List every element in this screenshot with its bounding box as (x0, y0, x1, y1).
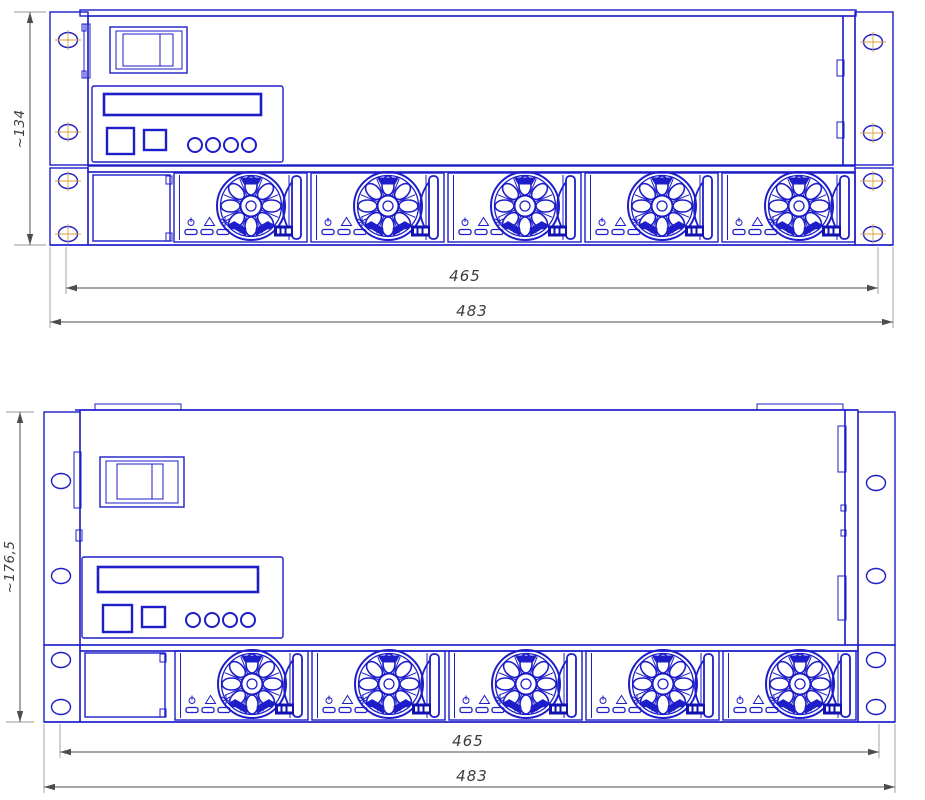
mounting-hole (55, 171, 81, 191)
mounting-hole (860, 32, 886, 52)
fan-module (722, 172, 855, 242)
fan-module (448, 172, 581, 242)
panel-button-round (206, 138, 220, 152)
mounting-hole (860, 224, 886, 244)
mounting-hole (867, 653, 886, 668)
mounting-hole (52, 653, 71, 668)
dim-text-height-2: ~176,5 (2, 541, 18, 594)
rack-ear-right-lower (855, 168, 893, 245)
control-panel (92, 86, 283, 162)
breaker-switch (110, 27, 187, 73)
dim-text-outer-width-2: 483 (456, 767, 488, 785)
dimension-width-465-view-2: 465 (60, 724, 879, 758)
fan-module (723, 650, 856, 720)
fan-shelf-band (80, 645, 858, 651)
mounting-hole (52, 569, 71, 584)
chassis-top-edge (80, 10, 856, 16)
lcd-display (98, 567, 258, 592)
mounting-hole (55, 122, 81, 142)
mounting-hole (867, 700, 886, 715)
right-flange (845, 410, 858, 645)
panel-button-square (107, 128, 134, 154)
dimension-height-view-1: ~134 (12, 12, 46, 245)
mounting-hole (55, 224, 81, 244)
rack-ear-right-lower (858, 645, 895, 722)
dim-text-outer-width-1: 483 (456, 302, 488, 320)
drawing-page: ~134 465 483 (0, 0, 925, 800)
blank-filler-panel (85, 653, 166, 717)
drawing-view-2 (44, 404, 895, 722)
fan-module (449, 650, 582, 720)
panel-button-square (144, 130, 166, 150)
top-tab (95, 404, 181, 410)
fan-shelf (80, 651, 858, 722)
rack-ear-right (858, 412, 895, 645)
left-latch (84, 24, 90, 78)
panel-button-round (188, 138, 202, 152)
unit-body (80, 410, 845, 645)
rack-ear-left (44, 412, 80, 645)
panel-button-round (186, 613, 200, 627)
control-panel (82, 557, 283, 638)
top-tab (757, 404, 843, 410)
panel-button-round (223, 613, 237, 627)
fan-row (175, 650, 856, 720)
dim-text-inner-width-1: 465 (449, 267, 481, 285)
rack-ear-left-lower (44, 645, 80, 722)
dimension-width-465-view-1: 465 (66, 247, 878, 294)
panel-button-round (241, 613, 255, 627)
left-latch-tab (76, 530, 82, 541)
breaker-switch (100, 457, 184, 507)
fan-row (174, 172, 855, 242)
panel-button-round (224, 138, 238, 152)
mounting-hole (867, 476, 886, 491)
mounting-hole (52, 700, 71, 715)
mounting-hole (867, 569, 886, 584)
lcd-display (104, 94, 261, 115)
mounting-hole (52, 474, 71, 489)
blank-filler-panel (93, 175, 172, 241)
fan-module (174, 172, 307, 242)
mounting-hole (55, 30, 81, 50)
rack-ear-left-lower (50, 168, 88, 245)
dim-text-height-1: ~134 (12, 109, 28, 148)
fan-module (585, 172, 718, 242)
mounting-hole (860, 171, 886, 191)
fan-shelf-band (88, 166, 855, 172)
panel-button-round (205, 613, 219, 627)
right-flange (843, 16, 855, 165)
panel-button-round (242, 138, 256, 152)
rack-ear-left (50, 12, 88, 165)
drawing-view-1 (50, 10, 893, 245)
technical-drawing: ~134 465 483 (0, 0, 925, 800)
mounting-hole (860, 123, 886, 143)
dimension-height-view-2: ~176,5 (2, 412, 34, 722)
fan-module (311, 172, 444, 242)
dim-text-inner-width-2: 465 (452, 732, 484, 750)
panel-button-square (103, 605, 132, 632)
panel-button-square (142, 607, 165, 627)
fan-module (586, 650, 719, 720)
fan-module (175, 650, 308, 720)
fan-module (312, 650, 445, 720)
